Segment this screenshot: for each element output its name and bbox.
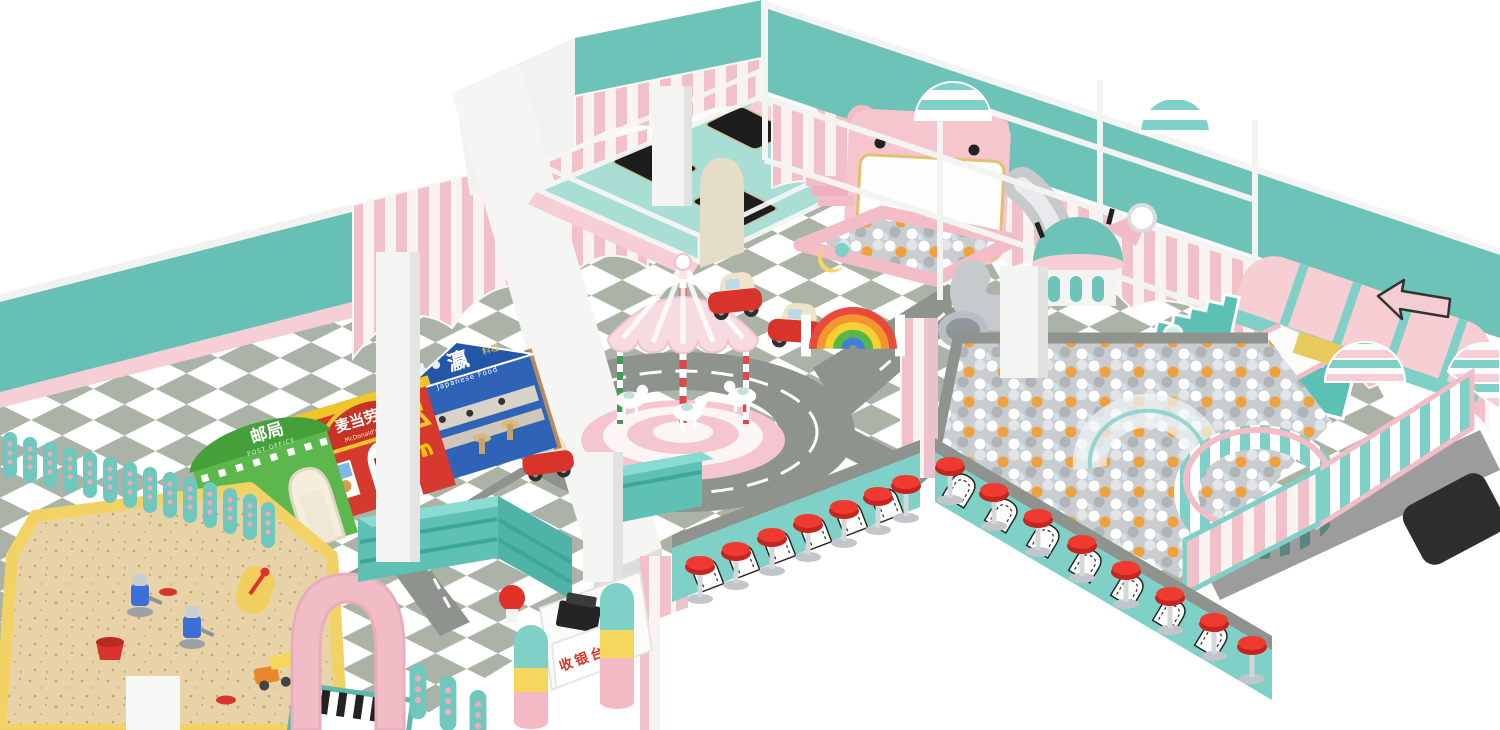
- sand-toy-bucket: [96, 637, 124, 660]
- sand-toy-disc: [216, 696, 236, 705]
- striped-column: [600, 583, 634, 709]
- arch-doorway: [700, 158, 744, 268]
- indoor-playground-render: 瀛 料理 Japanese Food 麦当劳 McDonald's 邮局 POS…: [0, 0, 1500, 730]
- pillar: [583, 452, 623, 582]
- striped-column: [514, 625, 548, 729]
- sand-toy-disc: [159, 588, 177, 596]
- pillar: [376, 252, 420, 562]
- red-ball-stool: [499, 585, 525, 611]
- white-block: [126, 676, 180, 730]
